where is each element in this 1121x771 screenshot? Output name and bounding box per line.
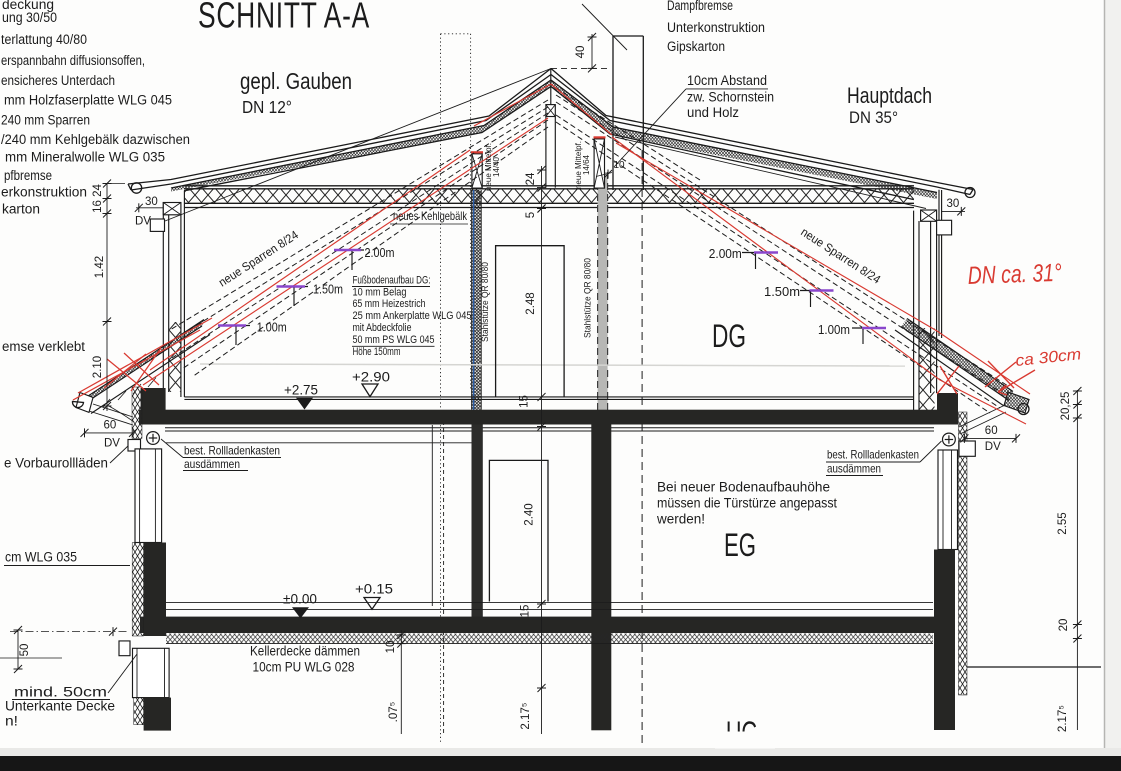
- svg-text:65 mm Heizestrich: 65 mm Heizestrich: [353, 298, 426, 310]
- svg-text:1.42: 1.42: [94, 256, 106, 278]
- svg-text:ausdämmen: ausdämmen: [184, 457, 240, 471]
- svg-text:gepl. Gauben: gepl. Gauben: [240, 68, 352, 94]
- svg-text:EG: EG: [724, 527, 756, 563]
- svg-text:terlattung 40/80: terlattung 40/80: [1, 32, 87, 47]
- svg-text:16 24: 16 24: [92, 184, 104, 213]
- svg-text:2.17⁵: 2.17⁵: [520, 702, 532, 729]
- svg-text:pfbremse: pfbremse: [4, 168, 52, 183]
- svg-text:Unterkante Decke: Unterkante Decke: [5, 699, 115, 714]
- svg-text:neues Kehlgebälk: neues Kehlgebälk: [393, 209, 468, 223]
- svg-text:mit Abdeckfolie: mit Abdeckfolie: [353, 322, 412, 334]
- svg-text:.07⁵: .07⁵: [388, 701, 400, 722]
- svg-text:2.55: 2.55: [1057, 512, 1069, 534]
- svg-text:DG: DG: [712, 318, 746, 354]
- svg-text:1.00m: 1.00m: [257, 320, 287, 334]
- svg-text:ensicheres Unterdach: ensicheres Unterdach: [1, 73, 115, 88]
- svg-text:DV: DV: [985, 441, 1001, 453]
- svg-text:40: 40: [575, 46, 587, 59]
- svg-text:und Holz: und Holz: [687, 105, 739, 120]
- svg-text:±0.00: ±0.00: [283, 592, 317, 607]
- svg-text:2.00m: 2.00m: [365, 246, 395, 260]
- svg-text:/240 mm Kehlgebälk dazwischen: /240 mm Kehlgebälk dazwischen: [1, 132, 190, 147]
- svg-text:10cm PU WLG 028: 10cm PU WLG 028: [253, 660, 355, 675]
- svg-text:20: 20: [1058, 619, 1070, 632]
- svg-text:10: 10: [385, 641, 397, 654]
- svg-text:240 mm Sparren: 240 mm Sparren: [1, 113, 90, 128]
- svg-text:mm Holzfaserplatte WLG 045: mm Holzfaserplatte WLG 045: [4, 93, 172, 108]
- svg-text:2.48: 2.48: [525, 292, 537, 314]
- svg-text:50 mm PS WLG 045: 50 mm PS WLG 045: [353, 334, 435, 346]
- svg-text:14/40: 14/40: [492, 156, 501, 177]
- svg-text:2.00m: 2.00m: [709, 247, 742, 261]
- svg-text:ung 30/50: ung 30/50: [2, 10, 57, 25]
- svg-text:DV: DV: [135, 216, 151, 228]
- svg-text:e Vorbaurollläden: e Vorbaurollläden: [4, 456, 108, 471]
- svg-text:14/64: 14/64: [582, 154, 591, 175]
- svg-text:50: 50: [19, 644, 31, 657]
- svg-text:müssen die Türstürze angepasst: müssen die Türstürze angepasst: [657, 496, 837, 511]
- svg-text:cm WLG 035: cm WLG 035: [5, 550, 77, 565]
- svg-text:Gipskarton: Gipskarton: [667, 39, 725, 54]
- svg-text:1.00m: 1.00m: [818, 323, 850, 337]
- svg-text:zw. Schornstein: zw. Schornstein: [687, 90, 774, 105]
- svg-text:15: 15: [520, 605, 532, 618]
- svg-text:best. Rollladenkasten: best. Rollladenkasten: [827, 448, 919, 462]
- svg-text:5: 5: [525, 212, 537, 218]
- svg-text:Bei neuer Bodenaufbauhöhe: Bei neuer Bodenaufbauhöhe: [657, 480, 830, 495]
- svg-text:10cm Abstand: 10cm Abstand: [687, 73, 767, 88]
- svg-text:emse verklebt: emse verklebt: [2, 339, 85, 354]
- svg-text:25 mm Ankerplatte WLG 045: 25 mm Ankerplatte WLG 045: [353, 310, 472, 322]
- svg-text:20,25: 20,25: [1060, 392, 1072, 421]
- svg-text:erspannbahn diffusionsoffen,: erspannbahn diffusionsoffen,: [1, 53, 145, 68]
- svg-text:Dampfbremse: Dampfbremse: [667, 0, 733, 13]
- svg-text:Hauptdach: Hauptdach: [847, 83, 932, 108]
- svg-text:Unterkonstruktion: Unterkonstruktion: [667, 20, 765, 35]
- svg-text:60: 60: [985, 425, 998, 437]
- svg-text:DN 35°: DN 35°: [849, 108, 898, 127]
- svg-text:24: 24: [525, 172, 537, 185]
- svg-text:1.50m: 1.50m: [313, 282, 343, 296]
- svg-text:DV: DV: [104, 438, 120, 450]
- svg-text:mm Mineralwolle WLG 035: mm Mineralwolle WLG 035: [5, 150, 165, 165]
- svg-text:n!: n!: [5, 714, 18, 729]
- svg-text:DN ca. 31°: DN ca. 31°: [967, 259, 1062, 290]
- svg-text:+2.90: +2.90: [352, 370, 390, 385]
- svg-text:Stahlstütze QR 80/80: Stahlstütze QR 80/80: [583, 258, 594, 338]
- svg-text:60: 60: [104, 420, 117, 432]
- svg-text:karton: karton: [2, 202, 40, 217]
- svg-text:+2.75: +2.75: [284, 383, 318, 398]
- svg-text:SCHNITT A-A: SCHNITT A-A: [198, 0, 370, 36]
- svg-text:Kellerdecke dämmen: Kellerdecke dämmen: [250, 644, 360, 659]
- svg-text:30: 30: [947, 198, 960, 210]
- svg-text:Stahlstütze QR 80/80: Stahlstütze QR 80/80: [480, 262, 491, 342]
- svg-text:1.50m: 1.50m: [764, 285, 800, 299]
- svg-text:15: 15: [519, 395, 531, 408]
- svg-text:30: 30: [145, 196, 158, 208]
- svg-text:DN 12°: DN 12°: [242, 97, 292, 117]
- svg-text:+0.15: +0.15: [355, 582, 393, 597]
- svg-text:erkonstruktion: erkonstruktion: [1, 185, 87, 200]
- svg-text:2.17⁵: 2.17⁵: [1057, 705, 1069, 732]
- svg-text:ausdämmen: ausdämmen: [827, 462, 881, 476]
- svg-text:mind. 50cm: mind. 50cm: [14, 685, 107, 700]
- svg-text:10: 10: [614, 160, 626, 171]
- svg-text:Höhe 150mm: Höhe 150mm: [353, 346, 401, 358]
- svg-text:best. Rollladenkasten: best. Rollladenkasten: [184, 444, 280, 458]
- svg-text:werden!: werden!: [656, 512, 705, 527]
- svg-text:2.10: 2.10: [92, 356, 104, 378]
- svg-text:10 mm Belag: 10 mm Belag: [353, 287, 407, 299]
- svg-text:2.40: 2.40: [524, 503, 536, 525]
- svg-text:Fußbodenaufbau DG:: Fußbodenaufbau DG:: [353, 275, 431, 287]
